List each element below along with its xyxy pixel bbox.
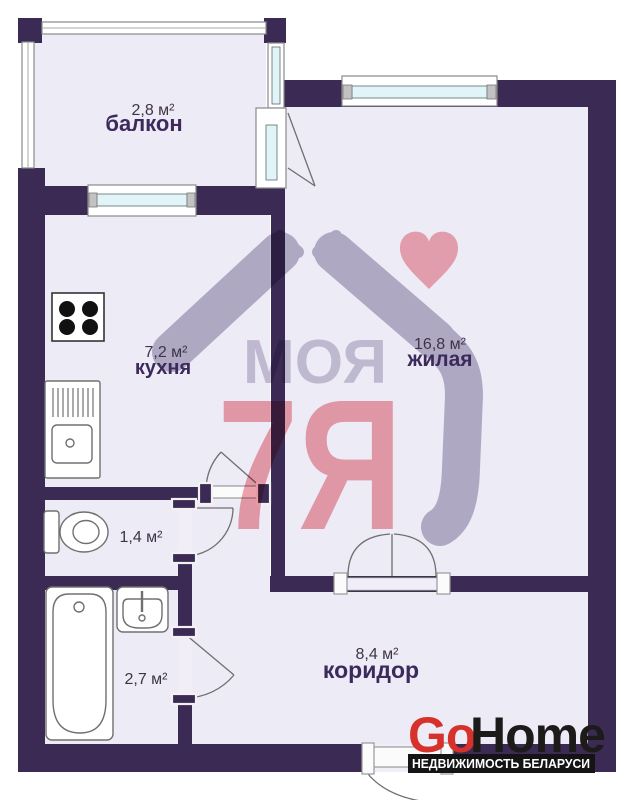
logo-tagline-text: НЕДВИЖИМОСТЬ БЕЛАРУСИ: [412, 756, 590, 771]
washbasin-icon: [117, 587, 168, 632]
balcony-label: балкон: [105, 111, 182, 136]
floorplan-image: МОЯ 7Я 2,8 м² балкон 7,2 м² кухня 16,8 м…: [0, 0, 643, 800]
living-label: жилая: [406, 348, 472, 371]
window-living: [342, 76, 497, 106]
kitchen-label: кухня: [135, 357, 191, 379]
bathtub-icon: [46, 587, 113, 740]
window-kitchen: [88, 185, 196, 216]
watermark-text-7ya: 7Я: [218, 362, 403, 569]
bathroom-area: 2,7 м²: [124, 671, 168, 688]
floorplan-svg: МОЯ 7Я 2,8 м² балкон 7,2 м² кухня 16,8 м…: [0, 0, 643, 800]
gohome-logo: Go Home НЕДВИЖИМОСТЬ БЕЛАРУСИ: [408, 707, 605, 773]
stove-icon: [52, 293, 104, 341]
toilet-area: 1,4 м²: [119, 529, 163, 546]
sink-icon: [45, 381, 100, 478]
corridor-label: коридор: [323, 657, 419, 683]
toilet-icon: [44, 511, 108, 553]
